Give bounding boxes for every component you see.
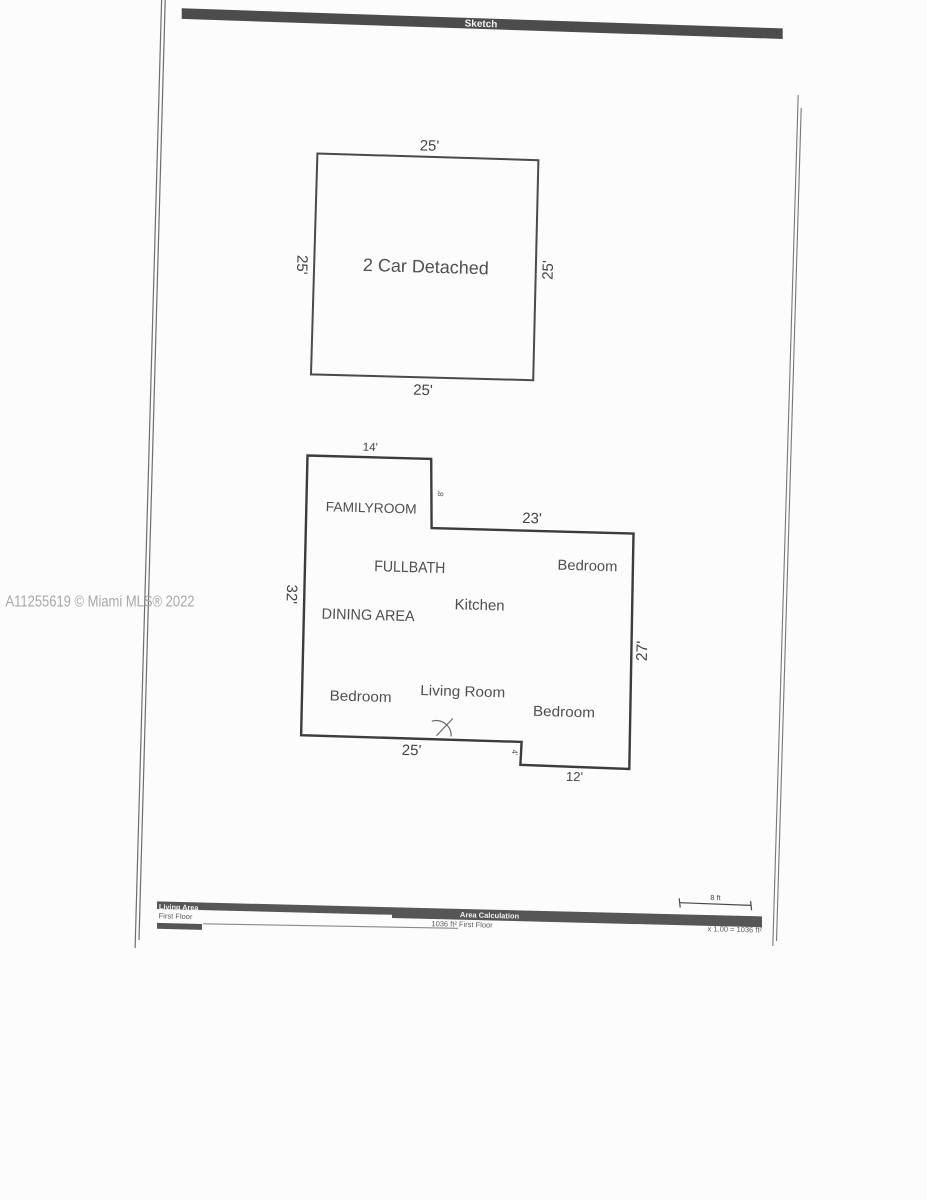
svg-text:Bedroom: Bedroom bbox=[533, 704, 595, 722]
svg-text:32': 32' bbox=[283, 584, 301, 604]
svg-text:8': 8' bbox=[436, 490, 445, 497]
svg-text:14': 14' bbox=[363, 442, 378, 454]
svg-text:8 ft: 8 ft bbox=[710, 893, 722, 902]
svg-text:25': 25' bbox=[402, 742, 422, 760]
svg-text:12': 12' bbox=[566, 769, 583, 784]
svg-text:25': 25' bbox=[293, 255, 311, 275]
svg-text:23': 23' bbox=[522, 510, 542, 528]
svg-text:First Floor: First Floor bbox=[159, 911, 193, 921]
svg-text:FAMILYROOM: FAMILYROOM bbox=[326, 499, 417, 517]
svg-text:27': 27' bbox=[634, 641, 652, 662]
svg-text:A11255619 © Miami MLS® 2022: A11255619 © Miami MLS® 2022 bbox=[6, 594, 195, 611]
svg-text:DINING AREA: DINING AREA bbox=[321, 606, 414, 626]
svg-text:FULLBATH: FULLBATH bbox=[374, 558, 445, 577]
svg-text:Living Room: Living Room bbox=[420, 683, 505, 701]
svg-text:25': 25' bbox=[540, 260, 558, 280]
svg-text:Bedroom: Bedroom bbox=[329, 688, 391, 706]
svg-text:Kitchen: Kitchen bbox=[454, 596, 504, 614]
svg-text:2 Car Detached: 2 Car Detached bbox=[363, 255, 490, 279]
svg-text:25': 25' bbox=[419, 137, 439, 155]
svg-text:25': 25' bbox=[413, 382, 433, 400]
svg-text:x 1.00 = 1036 ft²: x 1.00 = 1036 ft² bbox=[707, 924, 762, 934]
svg-text:Bedroom: Bedroom bbox=[557, 558, 617, 576]
svg-text:Sketch: Sketch bbox=[464, 18, 497, 30]
svg-text:4': 4' bbox=[510, 749, 519, 756]
